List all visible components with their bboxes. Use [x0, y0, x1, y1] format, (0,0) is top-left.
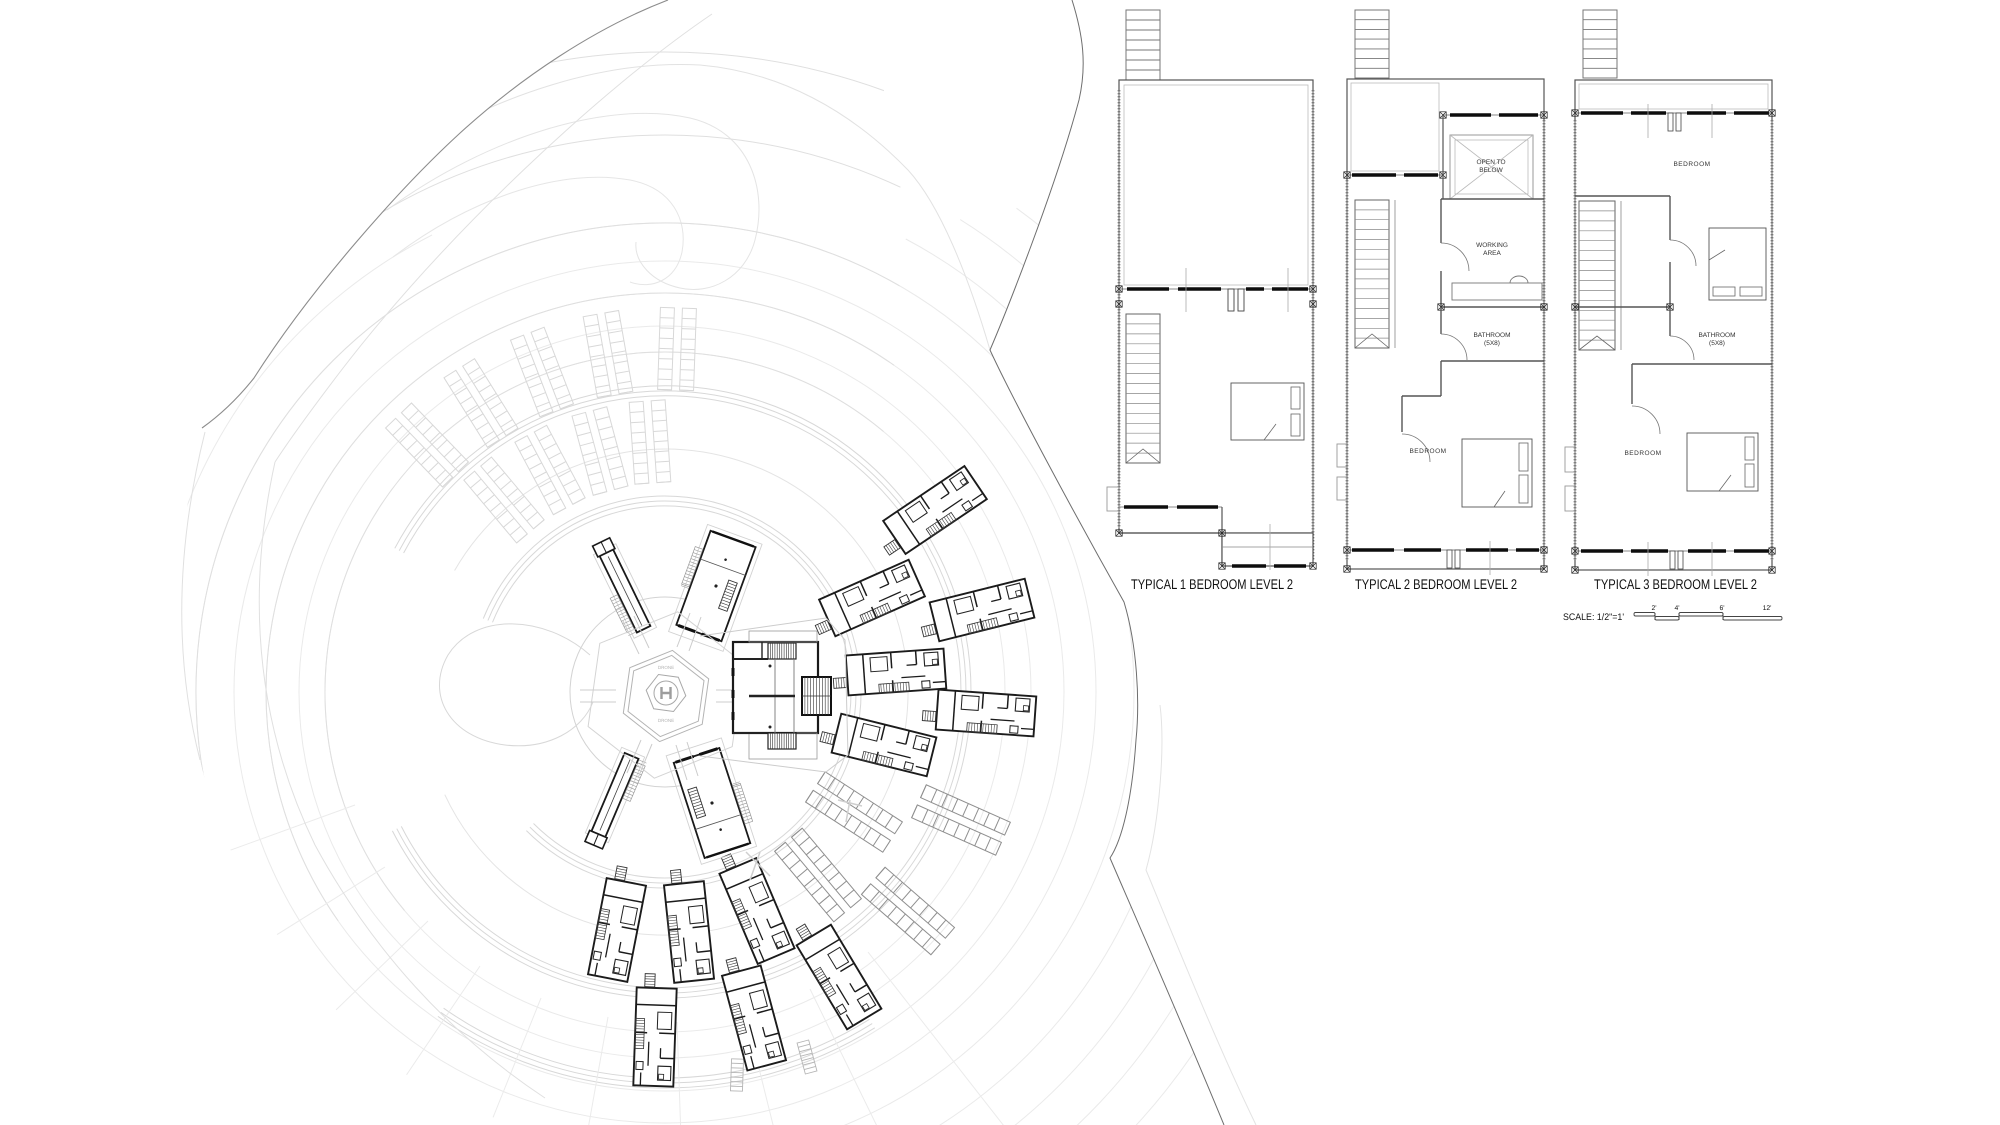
svg-text:BATHROOM: BATHROOM [1698, 332, 1735, 339]
svg-text:TYPICAL 2 BEDROOM LEVEL 2: TYPICAL 2 BEDROOM LEVEL 2 [1355, 576, 1517, 592]
svg-text:(5X8): (5X8) [1709, 340, 1725, 347]
svg-text:TYPICAL 3 BEDROOM LEVEL 2: TYPICAL 3 BEDROOM LEVEL 2 [1594, 576, 1757, 592]
svg-text:TYPICAL 1 BEDROOM LEVEL 2: TYPICAL 1 BEDROOM LEVEL 2 [1131, 576, 1293, 592]
svg-text:BEDROOM: BEDROOM [1624, 450, 1661, 457]
svg-text:AREA: AREA [1483, 250, 1501, 257]
svg-text:6': 6' [1719, 605, 1724, 612]
svg-text:WORKING: WORKING [1476, 242, 1508, 249]
svg-text:DRONE: DRONE [658, 718, 674, 723]
svg-text:2': 2' [1651, 605, 1656, 612]
svg-text:BEDROOM: BEDROOM [1409, 448, 1446, 455]
svg-text:OPEN TO: OPEN TO [1476, 159, 1505, 166]
svg-text:BEDROOM: BEDROOM [1673, 161, 1710, 168]
svg-text:4': 4' [1674, 605, 1679, 612]
svg-text:BELOW: BELOW [1479, 167, 1503, 174]
svg-text:SCALE: 1/2"=1': SCALE: 1/2"=1' [1563, 612, 1624, 623]
svg-text:BATHROOM: BATHROOM [1473, 332, 1510, 339]
svg-text:DRONE: DRONE [658, 665, 674, 670]
svg-text:12': 12' [1763, 605, 1772, 612]
svg-text:(5X8): (5X8) [1484, 340, 1500, 347]
